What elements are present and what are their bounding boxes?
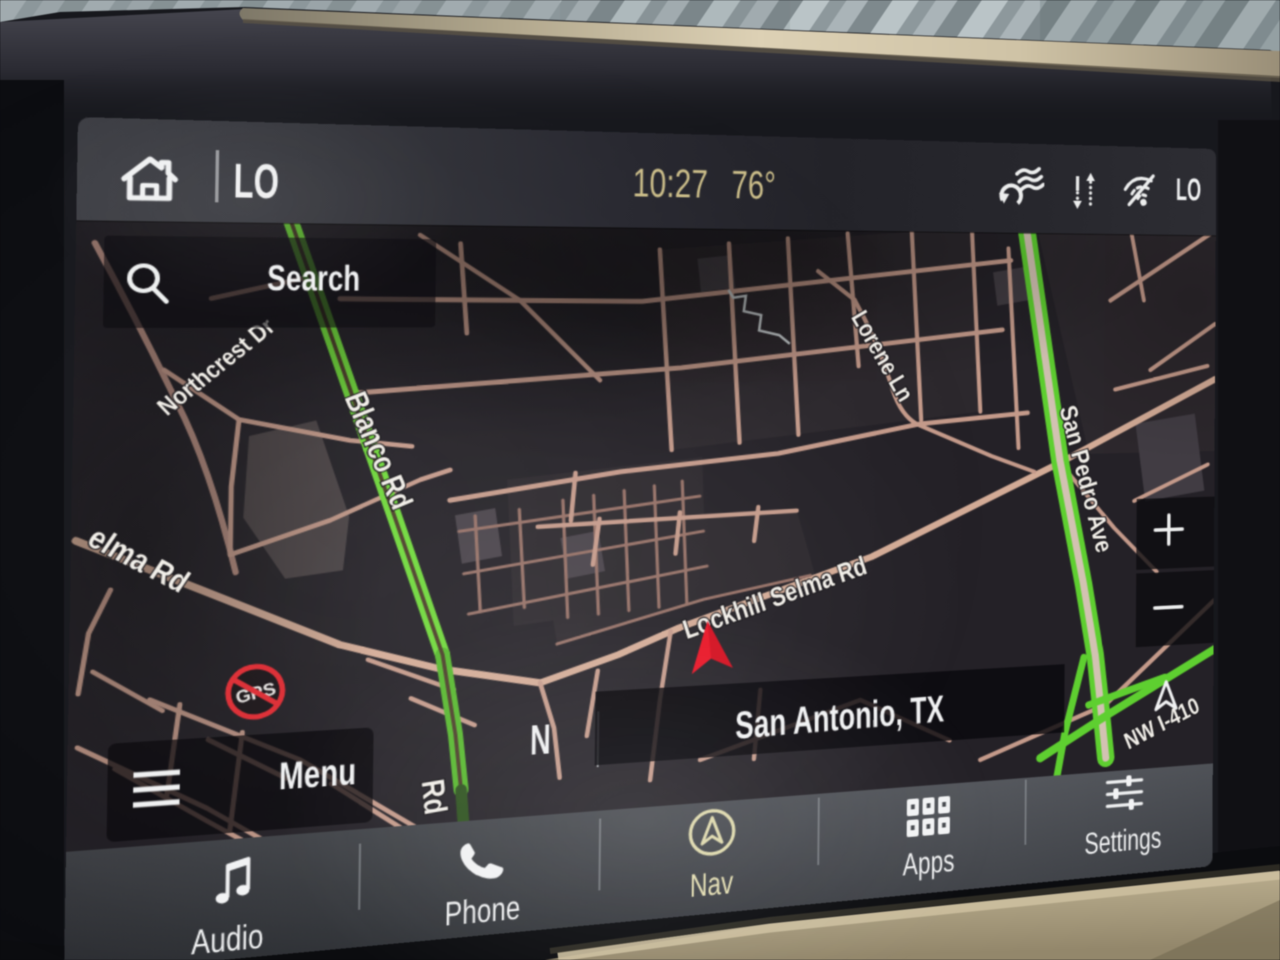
svg-text:Rd: Rd bbox=[415, 777, 455, 818]
